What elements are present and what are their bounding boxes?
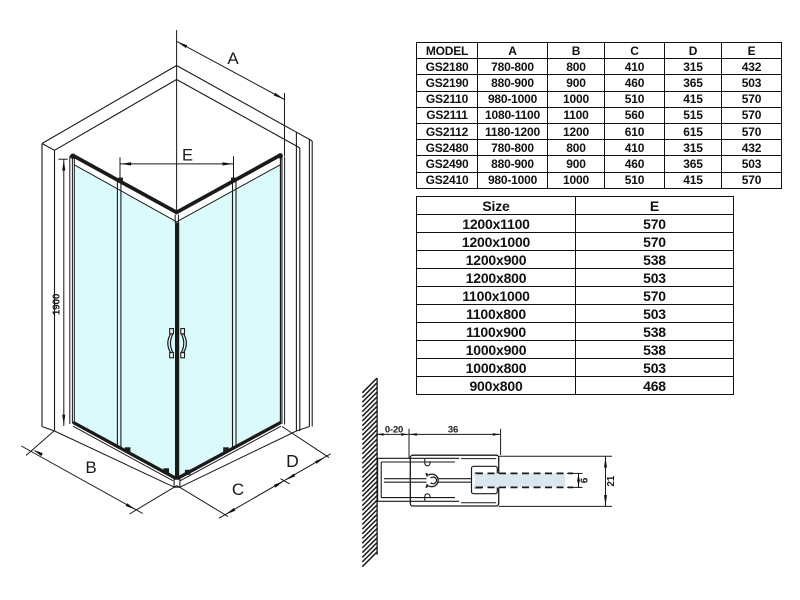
svg-text:E: E xyxy=(182,147,193,165)
svg-text:21: 21 xyxy=(606,475,617,486)
svg-text:36: 36 xyxy=(448,425,458,436)
svg-text:C: C xyxy=(232,480,244,499)
svg-text:B: B xyxy=(85,458,96,477)
svg-text:A: A xyxy=(227,49,239,68)
svg-text:1900: 1900 xyxy=(51,293,62,315)
svg-text:D: D xyxy=(286,451,299,471)
svg-text:0-20: 0-20 xyxy=(385,425,403,436)
svg-text:6: 6 xyxy=(579,477,590,483)
